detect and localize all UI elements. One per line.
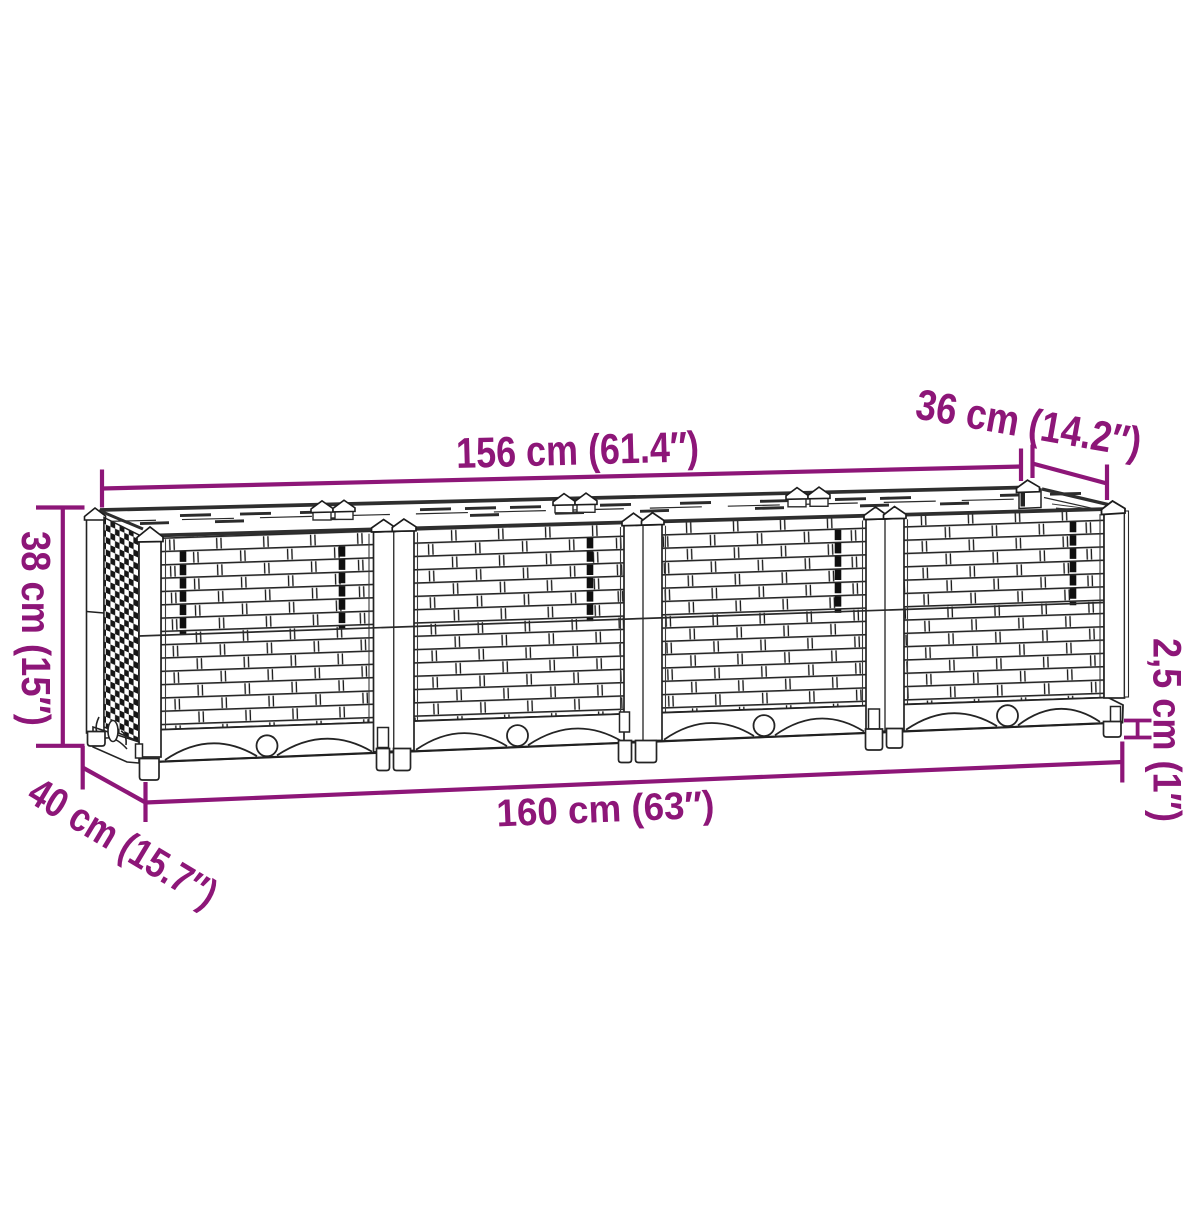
- svg-text:156 cm (61.4″): 156 cm (61.4″): [455, 423, 699, 478]
- svg-text:2,5 cm (1″): 2,5 cm (1″): [1145, 638, 1189, 822]
- svg-text:160 cm (63″): 160 cm (63″): [496, 783, 716, 835]
- svg-text:38 cm (15″): 38 cm (15″): [13, 531, 59, 726]
